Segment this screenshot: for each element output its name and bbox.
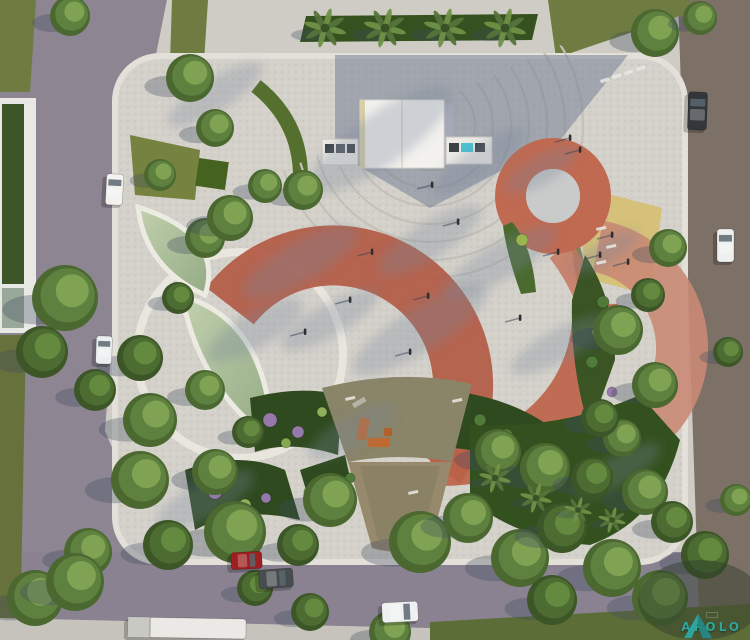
- shrub: [281, 438, 291, 448]
- shrub: [292, 426, 304, 438]
- white-car-bottom-road: [378, 601, 419, 626]
- apolo-triangle-icon: [681, 612, 715, 640]
- shrub: [516, 234, 528, 246]
- park-aerial-render: APOLO: [0, 0, 750, 640]
- shrub: [586, 356, 598, 368]
- shrub: [597, 296, 609, 308]
- lawn-top-left: [0, 0, 36, 92]
- median-strip: [170, 0, 208, 62]
- gray-car-bottom-road: [254, 568, 293, 593]
- dark-car-right-road: [683, 92, 707, 134]
- white-truck-bottom-left: [124, 617, 246, 640]
- small-planter: [195, 158, 229, 190]
- scene-svg: [0, 0, 750, 640]
- white-car-left-road-upper: [101, 173, 124, 208]
- white-car-left-road-lower: [91, 336, 112, 368]
- shrub: [474, 414, 486, 426]
- shrub: [261, 493, 271, 503]
- shrub: [263, 413, 277, 427]
- shrub: [317, 407, 327, 417]
- apolo-logo-mark: [706, 612, 718, 618]
- apolo-logo: APOLO: [681, 612, 742, 634]
- red-car-bottom-road: [227, 551, 263, 573]
- white-car-right-road: [713, 229, 734, 265]
